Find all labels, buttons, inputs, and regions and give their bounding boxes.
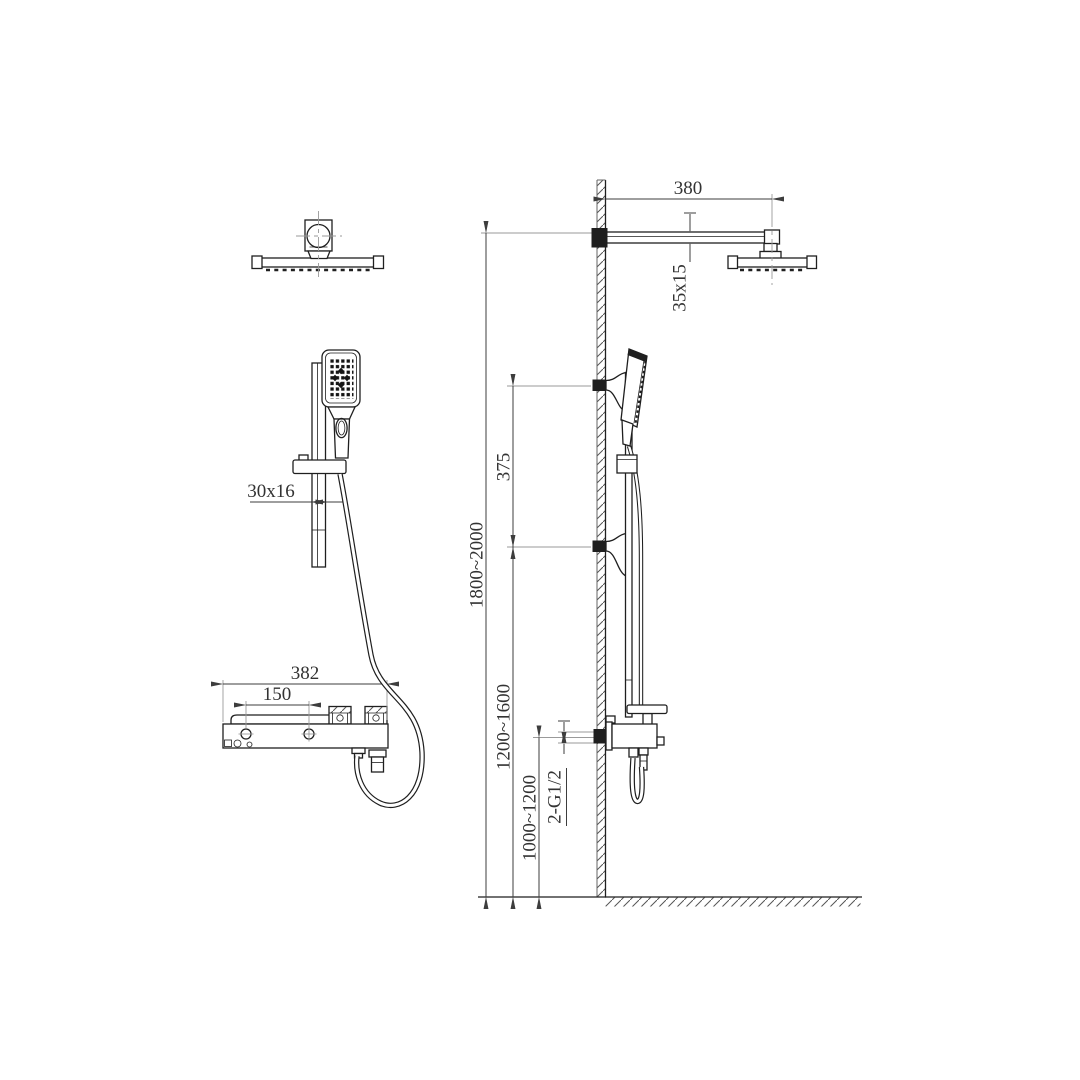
dim-overall-height-label: 1800~2000 [467,522,488,608]
rain-head-right-cap [374,256,384,269]
rain-head-plate-side [729,258,816,267]
mixer-outlet-nub [657,737,664,745]
shower-arm-side [592,213,817,285]
mixer-knob-1 [329,707,351,725]
hand-shower-side [617,349,647,473]
dim-inlet-connections-label: 2-G1/2 [545,770,566,824]
head-connector-upper [764,244,777,252]
mixer-wall-inlet [594,729,607,744]
mixer-lever-side [627,705,667,714]
dim-outlet-spacing-label: 150 [263,684,292,705]
mixer-valve-front [223,707,388,773]
side-view: 380 35x15 1800~2000 375 1200~1600 1000~1… [467,178,863,907]
dim-body-width-label: 382 [291,663,320,684]
ball-joint-connector [308,251,330,259]
lever-support [643,714,652,725]
mixer-knob-2 [365,707,387,725]
floor-section [478,897,862,907]
mixer-body-side [612,724,657,748]
rain-head-plate [253,258,383,267]
shower-system-technical-drawing: 30x16 382 150 [0,0,1080,1080]
slider-side [617,455,637,473]
floor-hatch [606,898,861,907]
shower-arm [606,232,766,243]
hose-nut-side [629,748,638,757]
dim-bar-section-label: 30x16 [247,481,295,502]
hand-shower-neck [328,407,355,419]
dim-lower-bracket-height-label: 1200~1600 [494,684,515,770]
wall-hatch [597,180,606,897]
dim-inlet-height-label: 1000~1200 [520,775,541,861]
mixer-body [223,724,388,748]
rain-head-left-cap [252,256,262,269]
hose-connector [352,748,365,754]
wall-section [597,180,606,897]
slider-bracket [293,460,346,474]
mixer-outlet-nut [369,750,386,757]
dim-arm-length-label: 380 [674,178,703,199]
dim-bracket-spacing-label: 375 [494,453,515,482]
hand-shower-front [322,350,360,458]
mixer-flange-side [606,722,612,750]
rain-shower-head-front [252,211,384,280]
front-view: 30x16 382 150 [223,211,422,805]
arm-wall-flange [592,228,608,248]
mixer-outlet [372,757,384,772]
dim-arm-section-label: 35x15 [670,264,691,312]
